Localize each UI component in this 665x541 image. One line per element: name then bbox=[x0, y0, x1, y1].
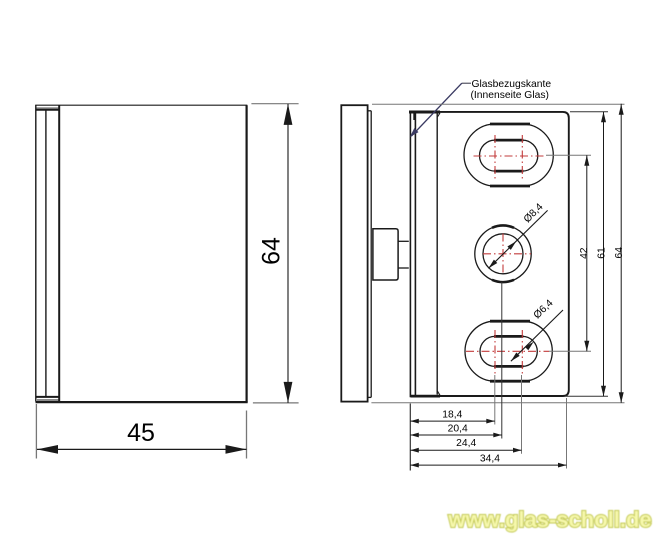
svg-text:64: 64 bbox=[614, 247, 625, 259]
svg-text:24,4: 24,4 bbox=[456, 438, 476, 449]
svg-text:61: 61 bbox=[597, 247, 608, 259]
svg-text:(Innenseite Glas): (Innenseite Glas) bbox=[471, 90, 549, 101]
svg-text:www.glas-scholl.de: www.glas-scholl.de bbox=[447, 507, 651, 532]
svg-text:18,4: 18,4 bbox=[442, 410, 462, 421]
svg-text:20,4: 20,4 bbox=[448, 424, 468, 435]
svg-text:45: 45 bbox=[127, 419, 155, 447]
svg-text:64: 64 bbox=[258, 237, 286, 265]
svg-text:34,4: 34,4 bbox=[480, 453, 500, 464]
svg-text:Glasbezugskante: Glasbezugskante bbox=[472, 79, 552, 90]
svg-text:42: 42 bbox=[579, 247, 590, 259]
